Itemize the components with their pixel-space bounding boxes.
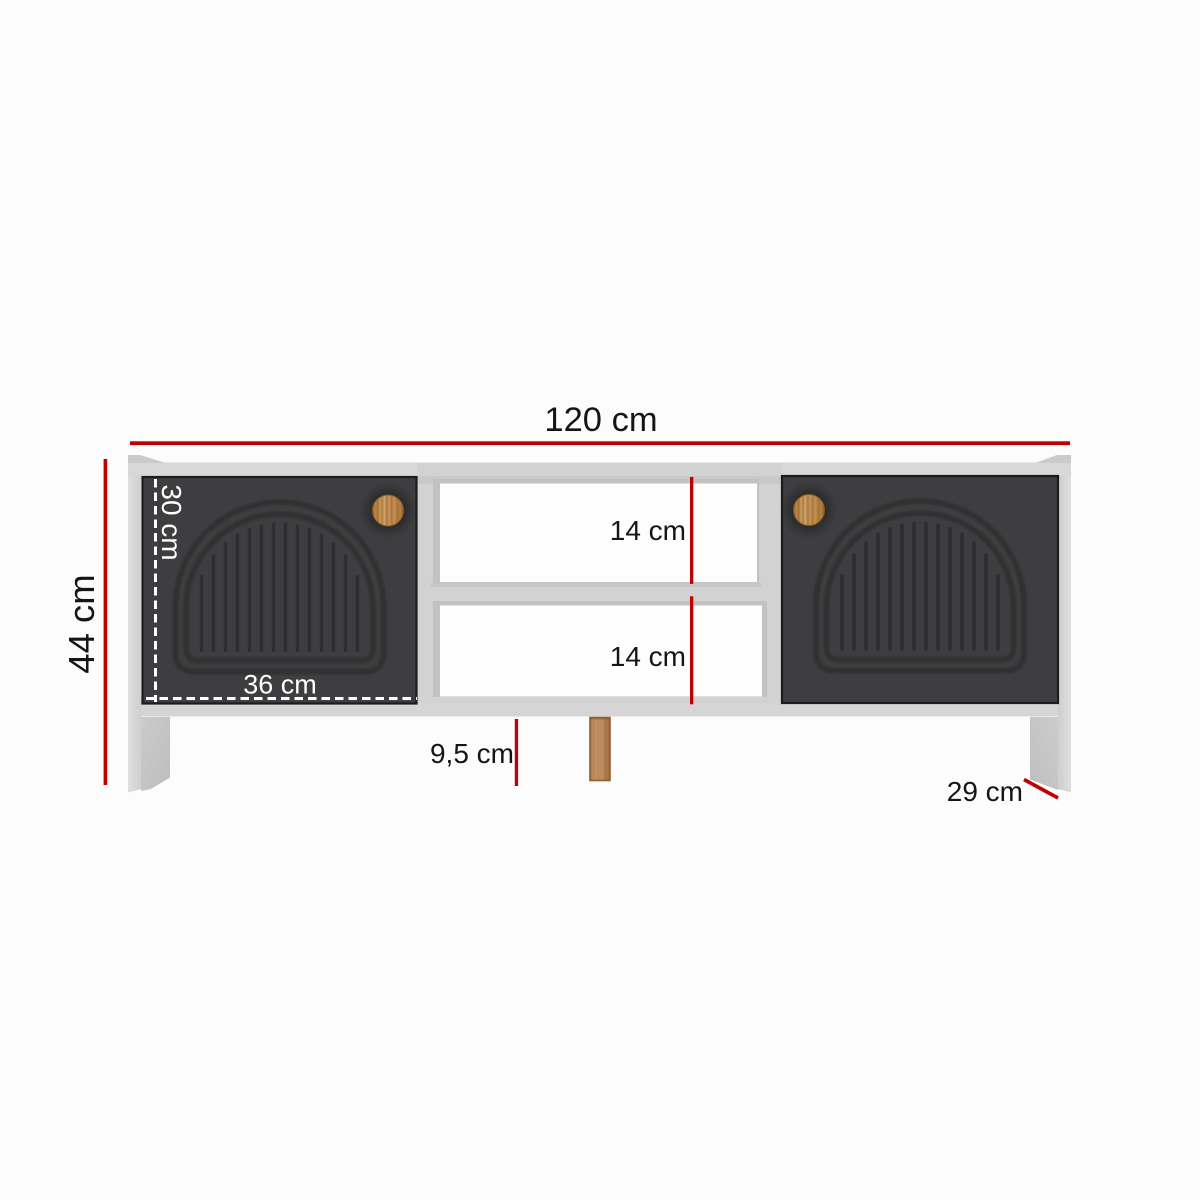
svg-text:44 cm: 44 cm [61,574,102,673]
svg-text:14 cm: 14 cm [610,641,686,672]
svg-text:30 cm: 30 cm [156,484,187,560]
svg-text:9,5 cm: 9,5 cm [430,738,514,769]
svg-text:120 cm: 120 cm [544,401,657,439]
svg-text:14 cm: 14 cm [610,515,686,546]
svg-text:36 cm: 36 cm [243,670,317,700]
svg-text:29 cm: 29 cm [947,776,1023,807]
